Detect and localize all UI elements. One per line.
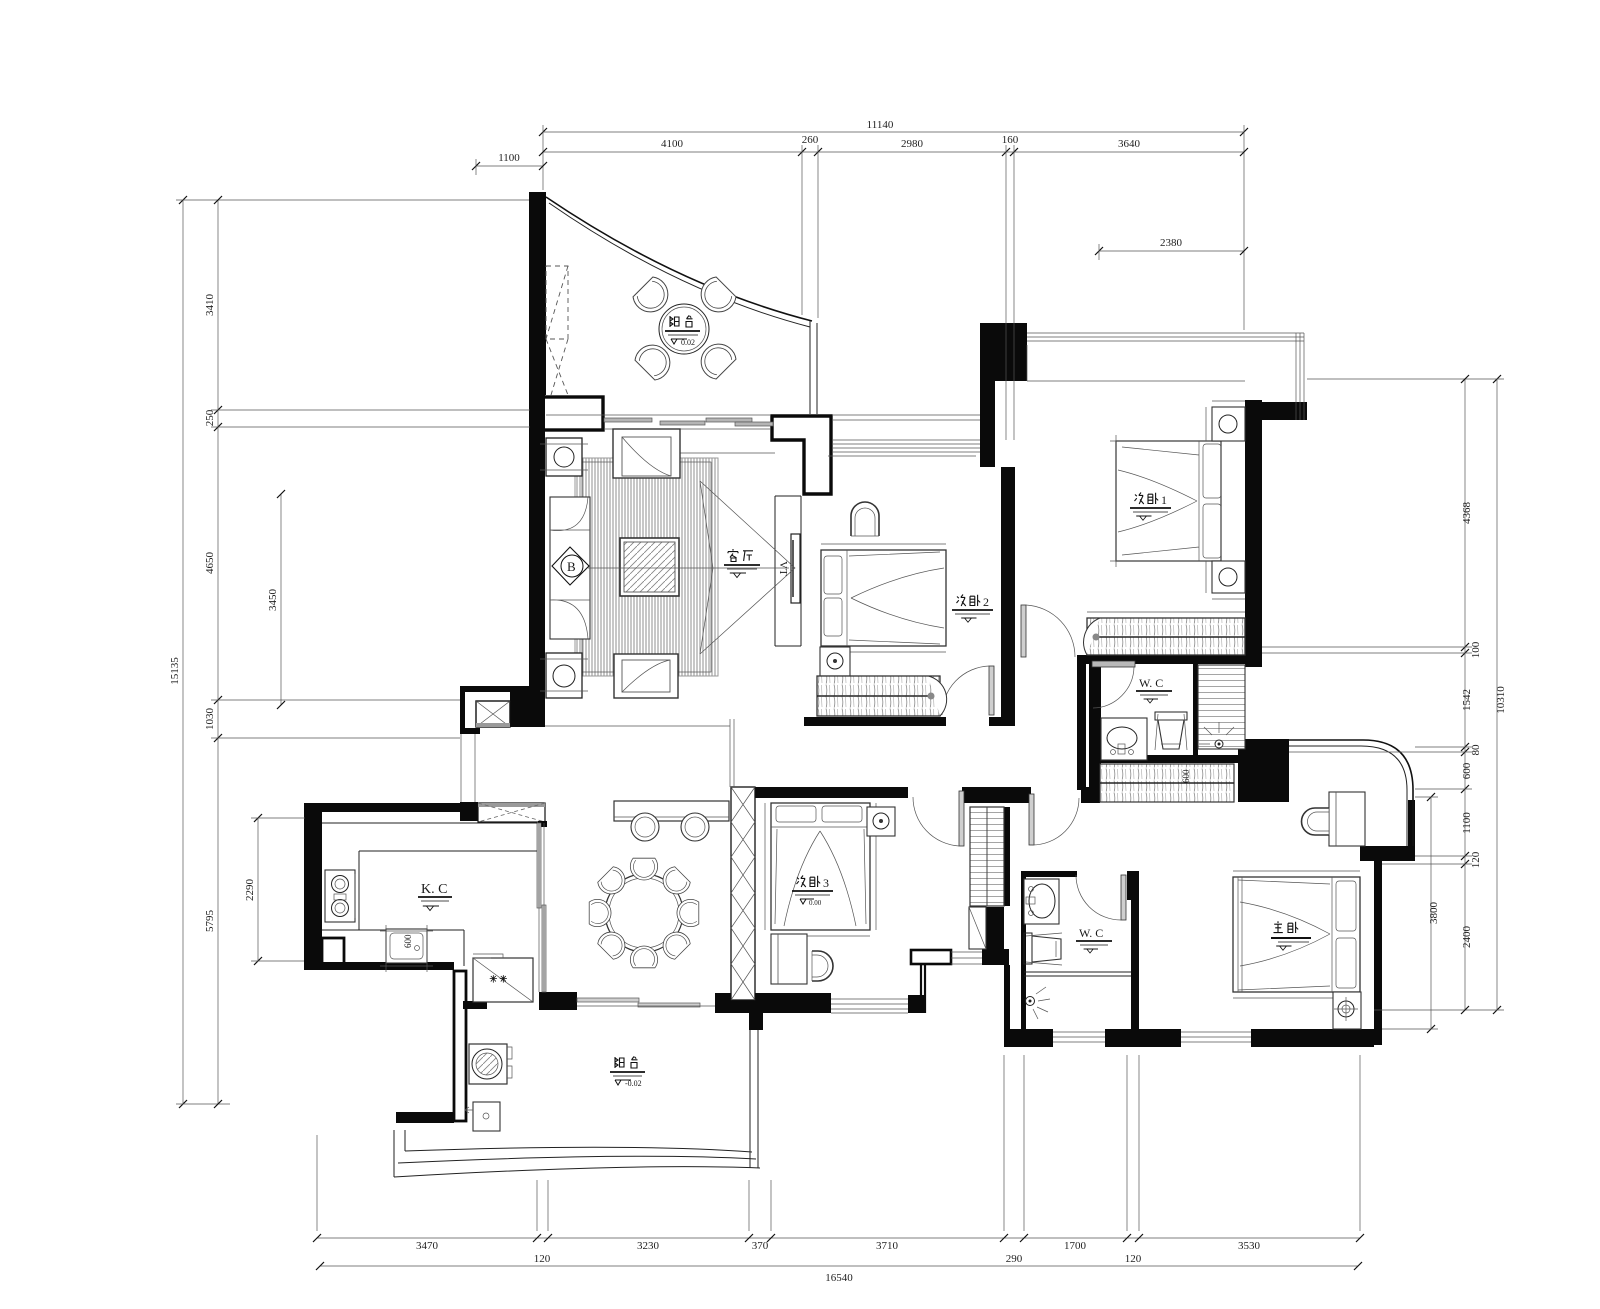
svg-text:4100: 4100 <box>661 138 684 150</box>
svg-text:5795: 5795 <box>204 910 216 933</box>
svg-text:W. C: W. C <box>1079 926 1103 940</box>
svg-text:3640: 3640 <box>1118 138 1141 150</box>
svg-text:1030: 1030 <box>204 708 216 731</box>
svg-text:1542: 1542 <box>1461 689 1473 711</box>
svg-text:0.00: 0.00 <box>809 899 822 907</box>
svg-text:2: 2 <box>983 595 989 609</box>
svg-text:600: 600 <box>1461 762 1473 779</box>
svg-text:2980: 2980 <box>901 138 924 150</box>
svg-text:3230: 3230 <box>637 1240 660 1252</box>
svg-text:600: 600 <box>403 934 413 948</box>
svg-text:3470: 3470 <box>416 1240 439 1252</box>
svg-text:3450: 3450 <box>267 589 279 612</box>
svg-text:3: 3 <box>823 876 829 890</box>
svg-text:VT: VT <box>777 561 789 576</box>
svg-text:600: 600 <box>1181 769 1191 783</box>
svg-text:3800: 3800 <box>1428 902 1440 925</box>
svg-text:120: 120 <box>1125 1253 1142 1265</box>
svg-text:0.02: 0.02 <box>681 338 695 347</box>
svg-text:120: 120 <box>1470 851 1482 868</box>
svg-text:250: 250 <box>204 409 216 426</box>
svg-text:370: 370 <box>752 1240 769 1252</box>
svg-text:1700: 1700 <box>1064 1240 1087 1252</box>
svg-text:260: 260 <box>802 134 819 146</box>
svg-text:W. C: W. C <box>1139 676 1163 690</box>
svg-text:4650: 4650 <box>204 552 216 575</box>
svg-text:15135: 15135 <box>169 657 181 685</box>
svg-text:1100: 1100 <box>1461 812 1473 834</box>
svg-text:2380: 2380 <box>1160 237 1183 249</box>
svg-text:80: 80 <box>1470 744 1482 756</box>
svg-text:-0.02: -0.02 <box>625 1079 642 1088</box>
svg-text:2290: 2290 <box>244 879 256 902</box>
svg-text:120: 120 <box>534 1253 551 1265</box>
svg-text:3710: 3710 <box>876 1240 899 1252</box>
svg-text:K. C: K. C <box>421 882 447 897</box>
svg-text:160: 160 <box>1002 134 1019 146</box>
svg-text:100: 100 <box>1470 641 1482 658</box>
svg-text:1: 1 <box>1161 493 1167 507</box>
svg-text:10310: 10310 <box>1495 686 1507 714</box>
svg-text:4368: 4368 <box>1461 502 1473 525</box>
svg-text:B: B <box>567 559 576 574</box>
svg-text:11140: 11140 <box>867 119 894 131</box>
svg-text:16540: 16540 <box>825 1272 853 1284</box>
svg-text:290: 290 <box>1006 1253 1023 1265</box>
svg-text:1100: 1100 <box>498 152 520 164</box>
svg-text:2400: 2400 <box>1461 926 1473 949</box>
svg-text:3530: 3530 <box>1238 1240 1261 1252</box>
svg-text:3410: 3410 <box>204 294 216 317</box>
